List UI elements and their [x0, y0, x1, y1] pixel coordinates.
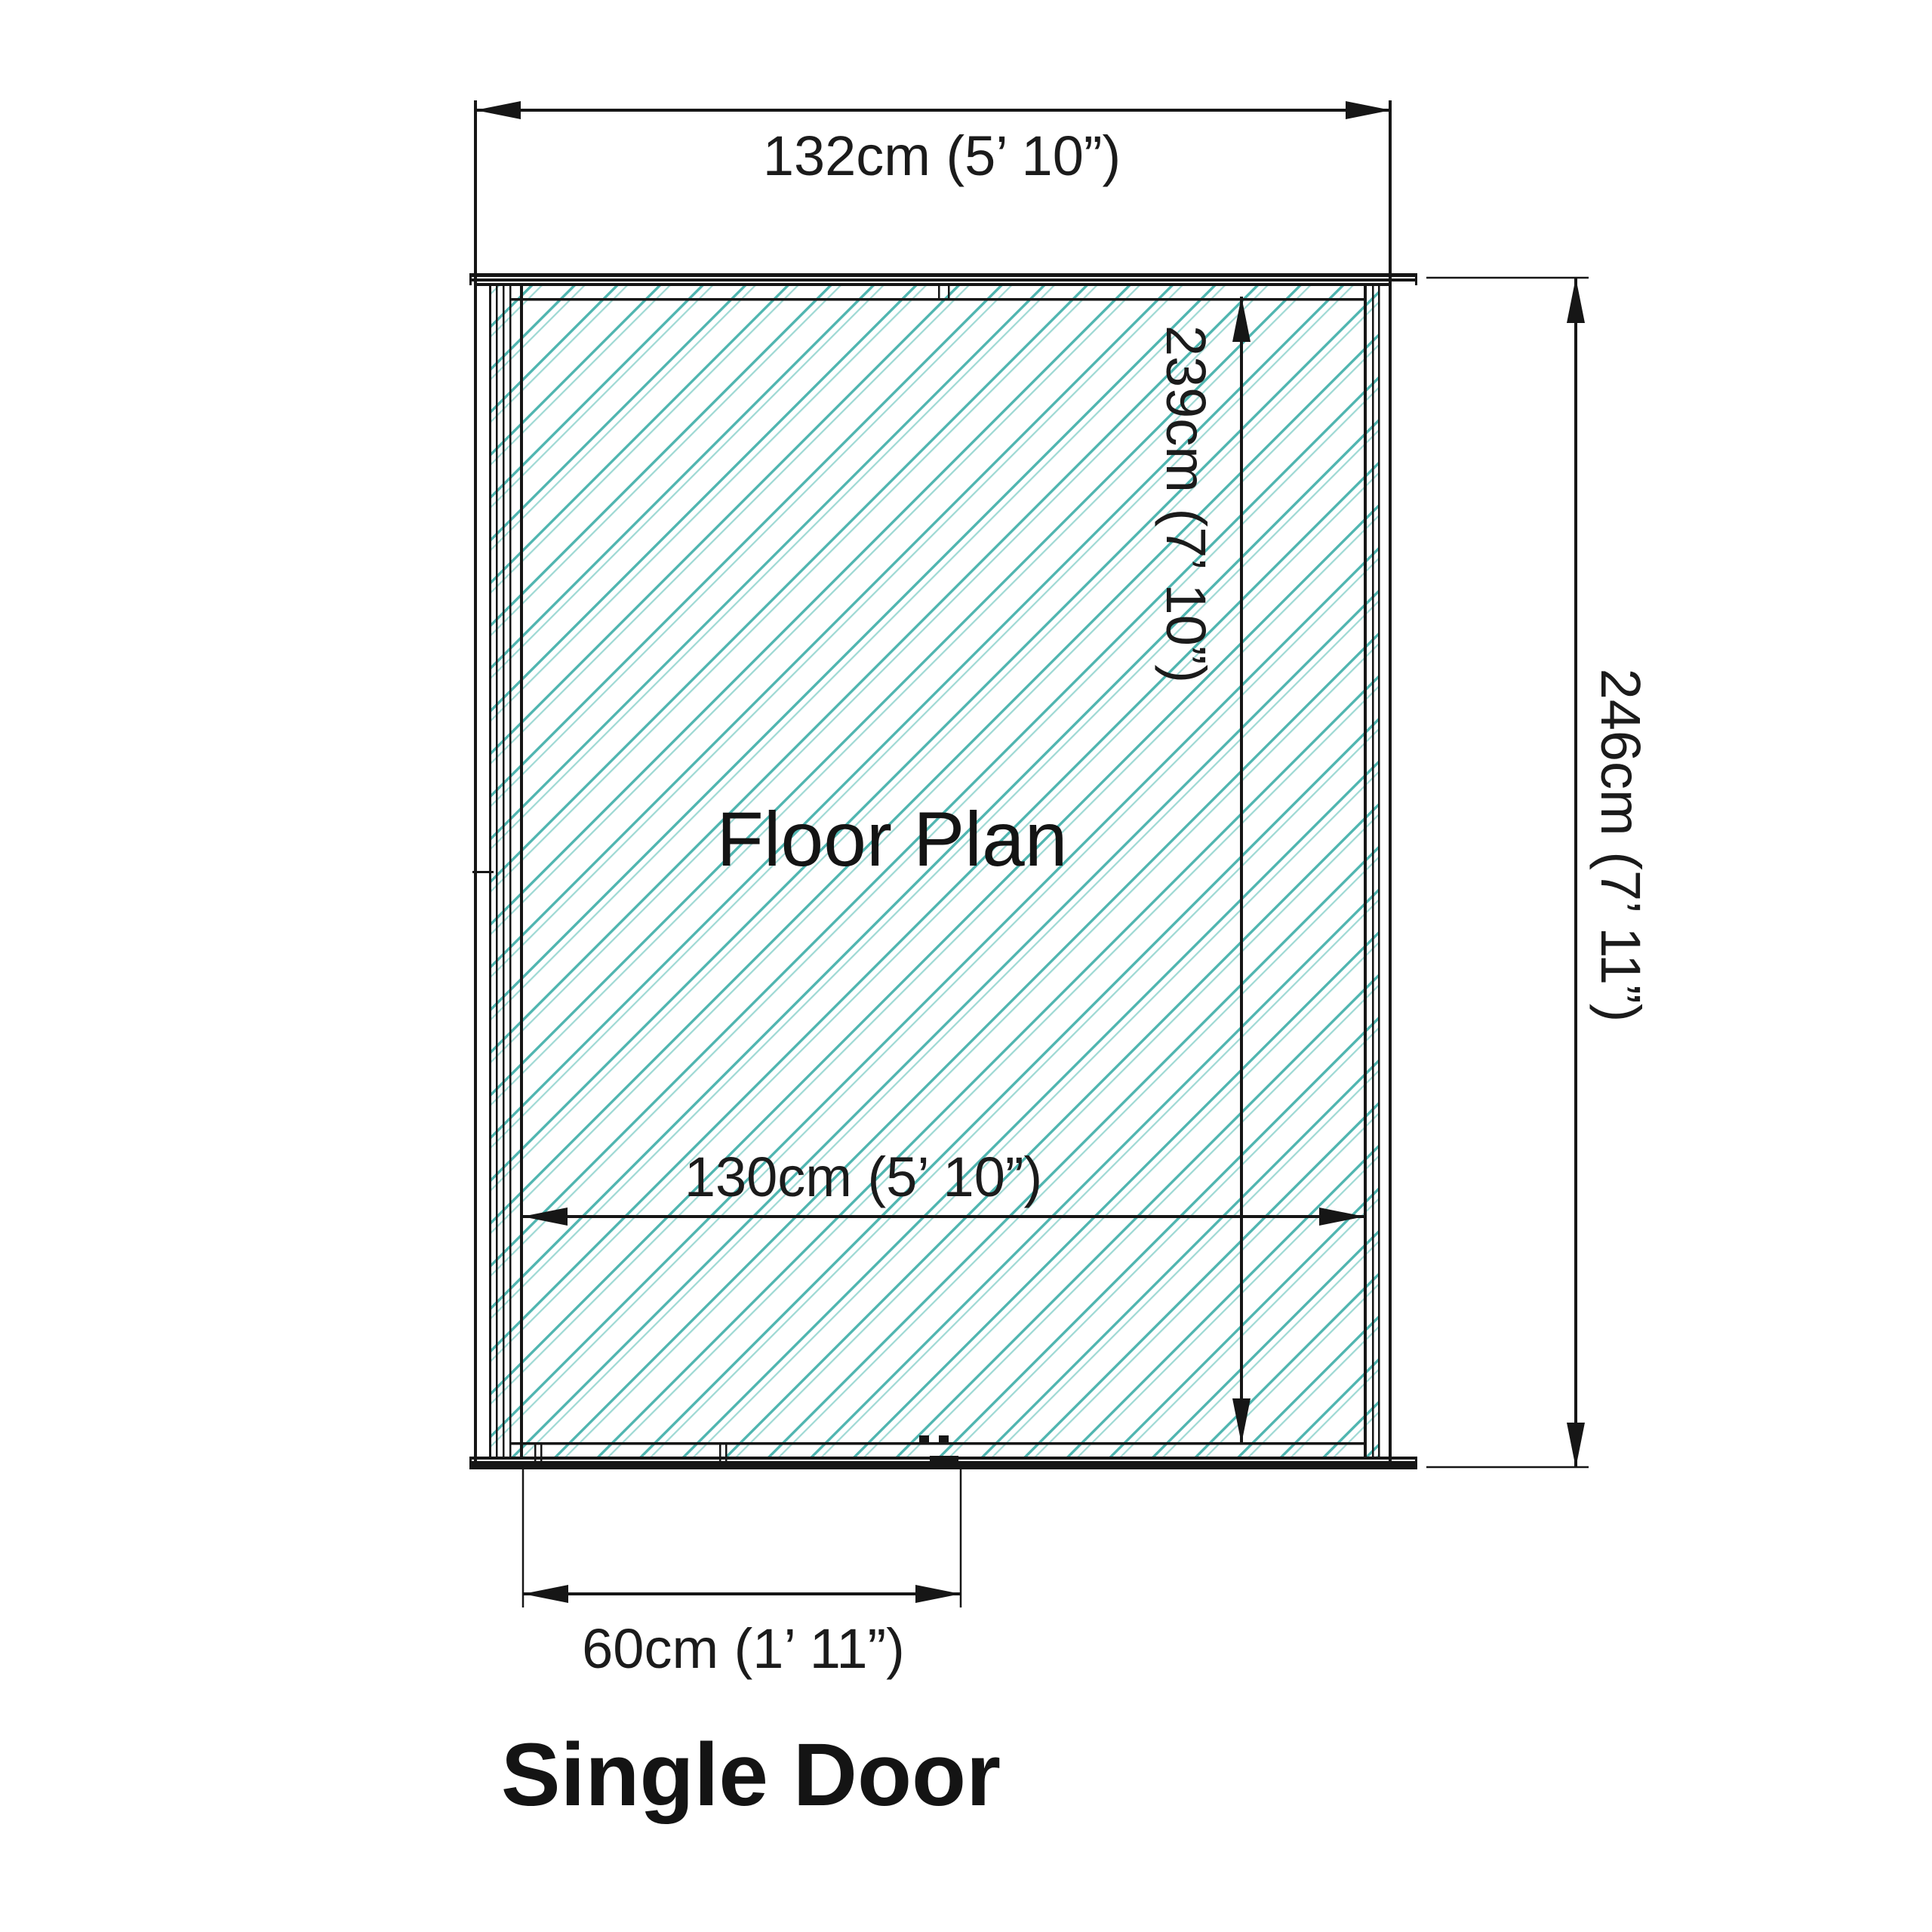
dimension-label-outer-width: 132cm (5’ 10”)	[763, 125, 1121, 187]
door-hinge-mark	[939, 1435, 949, 1443]
bottom-wall-inner-line	[511, 1442, 1366, 1445]
plan-drawing: 132cm (5’ 10”) 246cm (7’ 11”) 239cm (7’ …	[0, 0, 1932, 1932]
door-jamb-block	[930, 1456, 958, 1469]
dimension-label-inner-depth: 239cm (7’ 10”)	[1155, 325, 1217, 683]
floor-plan-label: Floor Plan	[717, 796, 1068, 882]
floor-plan-diagram: 132cm (5’ 10”) 246cm (7’ 11”) 239cm (7’ …	[0, 0, 1932, 1932]
dimension-label-outer-depth: 246cm (7’ 11”)	[1589, 669, 1652, 1023]
dimension-label-door-width: 60cm (1’ 11”)	[582, 1617, 905, 1680]
single-door-label: Single Door	[501, 1725, 1001, 1825]
dimension-label-inner-width: 130cm (5’ 10”)	[685, 1146, 1042, 1208]
door-hinge-mark	[919, 1435, 929, 1443]
wall-joint-mark	[472, 871, 494, 873]
roof-slab-line	[469, 273, 1417, 286]
